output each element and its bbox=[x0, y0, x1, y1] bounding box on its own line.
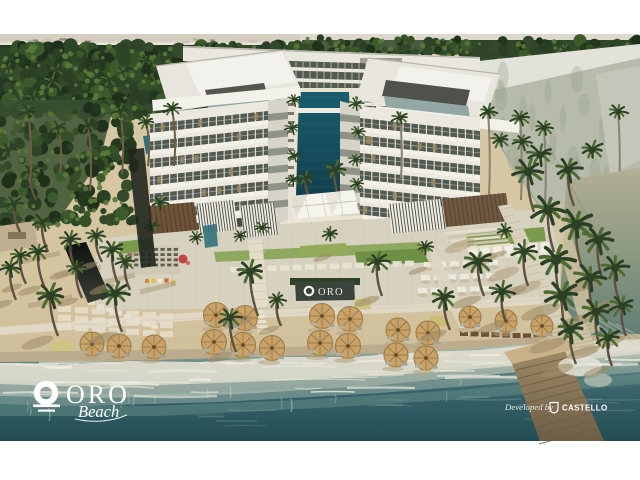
svg-text:CASTELLO: CASTELLO bbox=[562, 404, 608, 413]
svg-text:ORO: ORO bbox=[318, 287, 344, 298]
svg-text:Beach: Beach bbox=[78, 402, 119, 421]
svg-text:Developed by: Developed by bbox=[504, 402, 553, 412]
